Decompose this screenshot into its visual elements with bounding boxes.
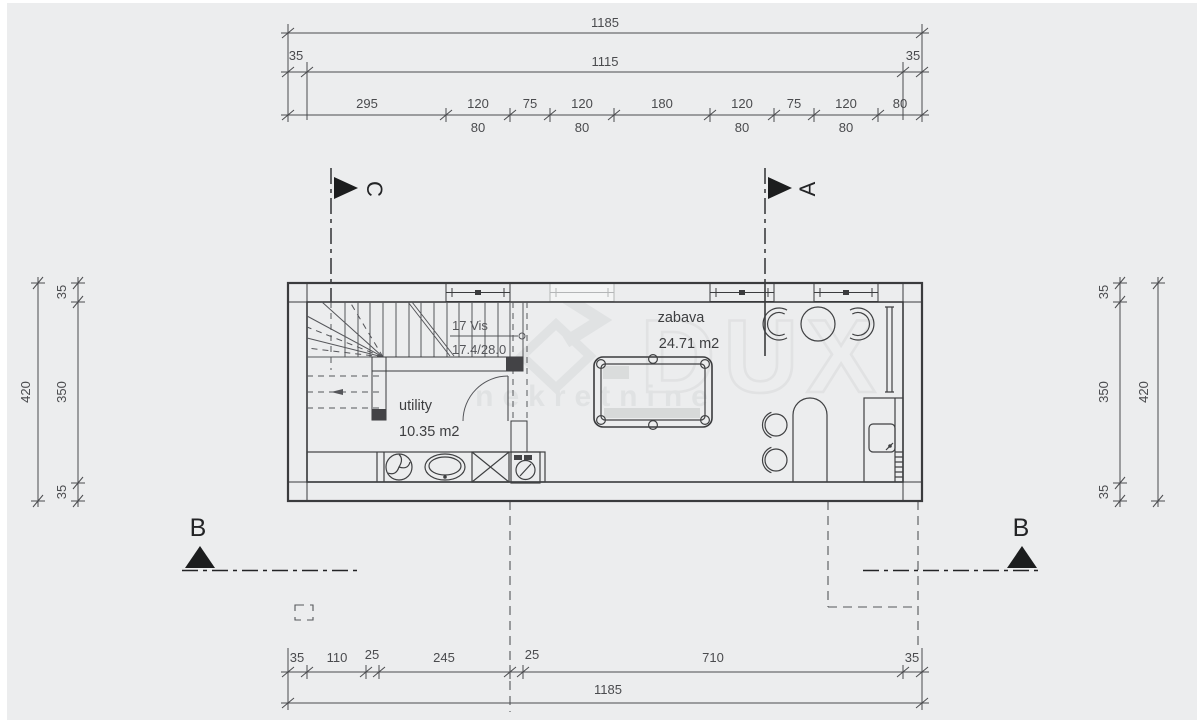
window — [446, 284, 510, 302]
utility-room-area: 10.35 m2 — [399, 424, 459, 440]
section-arrow-icon — [334, 177, 358, 199]
dim-sublabel: 80 — [839, 120, 853, 135]
section-marker-b-right: B — [863, 514, 1040, 571]
dim-label: 245 — [433, 650, 455, 665]
dim-label: 120 — [731, 96, 753, 111]
floor-plan-screenshot: DUX nekretnine 1185 35 1115 35 295 120 7… — [0, 0, 1200, 723]
dim-label: 75 — [787, 96, 801, 111]
washing-machine — [511, 452, 540, 483]
section-marker-b-left: B — [182, 514, 358, 571]
stair-label-line1: 17 Vis — [452, 318, 488, 333]
bar-stool — [762, 447, 787, 472]
dim-bottom-total: 1185 — [594, 682, 622, 697]
dim-label: 35 — [906, 48, 920, 63]
reference-square — [295, 605, 313, 620]
dim-label: 120 — [571, 96, 593, 111]
dimensions-top: 1185 35 1115 35 295 120 75 120 180 120 7… — [281, 15, 929, 135]
dim-label: 35 — [905, 650, 919, 665]
dim-label: 180 — [651, 96, 673, 111]
dimensions-bottom: 35 110 25 245 25 710 35 1185 — [281, 647, 929, 710]
dim-label: 80 — [893, 96, 907, 111]
wall-stub — [511, 421, 527, 452]
section-label-c: C — [362, 181, 387, 197]
section-arrow-icon — [1007, 546, 1037, 568]
zabava-room-label: zabava — [658, 310, 706, 326]
dim-label: 25 — [365, 647, 379, 662]
dim-label: 75 — [523, 96, 537, 111]
dim-label: 35 — [54, 285, 69, 299]
dim-label: 295 — [356, 96, 378, 111]
dim-label: 420 — [1136, 381, 1151, 403]
dimensions-left: 420 35 350 35 — [18, 277, 85, 507]
dim-label: 350 — [54, 381, 69, 403]
dim-label: 1115 — [592, 54, 619, 69]
dim-label: 120 — [467, 96, 489, 111]
stair-direction-arrow-icon — [331, 389, 343, 395]
bar-stool — [762, 412, 787, 437]
dim-label: 120 — [835, 96, 857, 111]
dim-label: 35 — [290, 650, 304, 665]
dim-label: 420 — [18, 381, 33, 403]
window — [550, 284, 614, 302]
stair-label-line2: 17.4/28.0 — [452, 342, 506, 357]
dim-sublabel: 80 — [735, 120, 749, 135]
dim-top-total: 1185 — [591, 15, 619, 30]
section-label-b: B — [1013, 514, 1030, 542]
utility-room-label: utility — [399, 398, 433, 414]
dim-label: 35 — [1096, 485, 1111, 499]
dim-label: 350 — [1096, 381, 1111, 403]
dimensions-right: 35 350 35 420 — [1096, 277, 1165, 507]
dim-label: 35 — [1096, 285, 1111, 299]
section-arrow-icon — [185, 546, 215, 568]
dim-sublabel: 80 — [471, 120, 485, 135]
dim-label: 35 — [54, 485, 69, 499]
utility-fixtures — [307, 452, 545, 483]
radiator — [885, 307, 894, 392]
section-arrow-icon — [768, 177, 792, 199]
fan-symbol-icon — [386, 454, 412, 480]
stair-leader-node — [519, 333, 525, 339]
floor-plan-drawing: DUX nekretnine 1185 35 1115 35 295 120 7… — [0, 0, 1200, 723]
projection-lines — [295, 501, 918, 712]
dim-label: 710 — [702, 650, 724, 665]
zabava-room-area: 24.71 m2 — [659, 336, 719, 352]
dim-label: 110 — [327, 650, 348, 665]
sink — [425, 454, 465, 480]
appliance-space — [472, 452, 509, 482]
dim-label: 35 — [289, 48, 303, 63]
section-label-a: A — [795, 181, 820, 196]
dim-label: 25 — [525, 647, 539, 662]
section-label-b: B — [190, 514, 207, 542]
dim-sublabel: 80 — [575, 120, 589, 135]
